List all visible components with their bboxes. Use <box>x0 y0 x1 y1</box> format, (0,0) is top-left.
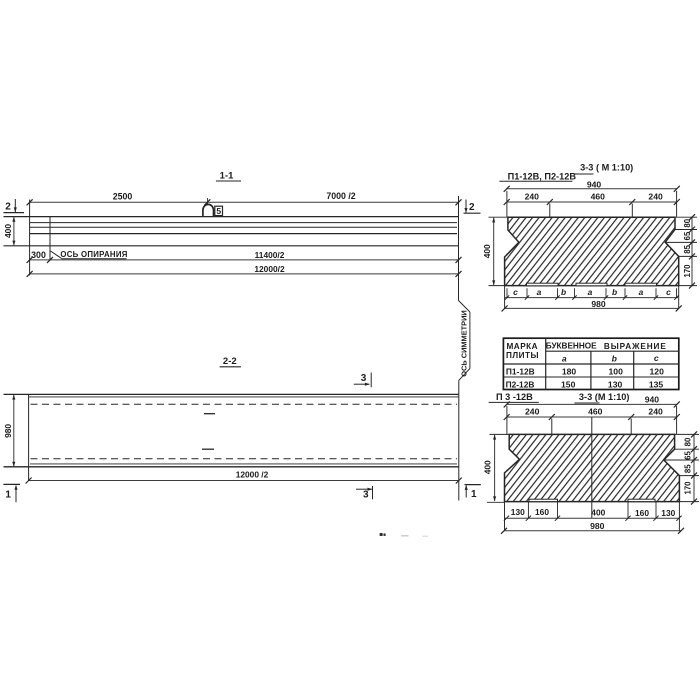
svg-text:2: 2 <box>469 202 475 213</box>
svg-text:ОСЬ СИММЕТРИИ: ОСЬ СИММЕТРИИ <box>460 310 469 376</box>
svg-text:a: a <box>537 287 542 297</box>
svg-text:БУКВЕННОЕ: БУКВЕННОЕ <box>546 342 597 351</box>
svg-text:П1-12В: П1-12В <box>506 367 535 377</box>
svg-text:120: 120 <box>650 367 665 377</box>
svg-text:85: 85 <box>684 464 693 473</box>
svg-text:130: 130 <box>608 379 623 389</box>
svg-text:180: 180 <box>562 367 577 377</box>
svg-text:b: b <box>561 287 566 297</box>
svg-text:135: 135 <box>649 379 664 389</box>
svg-text:240: 240 <box>648 406 663 416</box>
svg-text:460: 460 <box>591 191 606 201</box>
svg-text:940: 940 <box>645 395 660 405</box>
svg-text:c: c <box>513 287 518 297</box>
svg-text:130: 130 <box>661 508 675 518</box>
svg-text:МАРКА: МАРКА <box>506 342 538 351</box>
svg-text:П 3 -12В: П 3 -12В <box>496 392 533 402</box>
svg-text:a: a <box>588 287 593 297</box>
svg-text:ПЛИТЫ: ПЛИТЫ <box>506 351 539 360</box>
svg-text:160: 160 <box>635 508 649 518</box>
svg-text:160: 160 <box>535 507 549 517</box>
svg-text:170: 170 <box>684 481 693 495</box>
svg-text:150: 150 <box>561 379 576 389</box>
svg-text:85: 85 <box>683 244 692 253</box>
svg-text:80: 80 <box>683 218 692 227</box>
svg-text:2500: 2500 <box>113 192 133 202</box>
svg-text:2-2: 2-2 <box>223 356 237 367</box>
svg-text:b: b <box>612 353 617 363</box>
svg-text:ОСЬ ОПИРАНИЯ: ОСЬ ОПИРАНИЯ <box>60 250 127 259</box>
svg-text:980: 980 <box>591 299 606 309</box>
svg-text:240: 240 <box>648 191 663 201</box>
svg-text:240: 240 <box>525 406 540 416</box>
svg-text:5: 5 <box>216 206 221 216</box>
svg-text:3: 3 <box>363 490 369 501</box>
svg-text:240: 240 <box>525 191 540 201</box>
svg-text:П2-12В: П2-12В <box>506 379 535 389</box>
svg-text:7000 /2: 7000 /2 <box>326 191 355 201</box>
svg-text:400: 400 <box>3 224 13 238</box>
svg-text:1-1: 1-1 <box>220 171 234 182</box>
svg-text:170: 170 <box>683 264 692 278</box>
svg-text:940: 940 <box>587 179 602 189</box>
svg-text:80: 80 <box>684 437 693 446</box>
svg-text:11400/2: 11400/2 <box>255 250 285 260</box>
svg-text:b: b <box>612 287 617 297</box>
svg-text:1: 1 <box>5 490 11 501</box>
svg-text:3-3 (М 1:10): 3-3 (М 1:10) <box>579 392 630 402</box>
svg-text:1: 1 <box>471 489 477 500</box>
svg-text:c: c <box>666 287 671 297</box>
svg-text:12000 /2: 12000 /2 <box>236 469 269 479</box>
svg-text:65: 65 <box>684 451 693 460</box>
svg-text:100: 100 <box>609 367 624 377</box>
svg-text:3-3 ( М 1:10): 3-3 ( М 1:10) <box>580 162 633 172</box>
svg-text:c: c <box>654 353 659 363</box>
svg-text:980: 980 <box>590 521 605 531</box>
svg-text:3: 3 <box>361 373 367 384</box>
svg-text:П1-12В, П2-12В: П1-12В, П2-12В <box>508 171 577 181</box>
svg-text:980: 980 <box>3 424 13 438</box>
svg-text:65: 65 <box>683 231 692 240</box>
svg-text:460: 460 <box>588 406 603 416</box>
svg-text:a: a <box>639 287 644 297</box>
svg-text:130: 130 <box>511 507 525 517</box>
svg-text:400: 400 <box>483 460 493 474</box>
svg-text:ВЫРАЖЕНИЕ: ВЫРАЖЕНИЕ <box>604 342 667 351</box>
svg-text:400: 400 <box>482 244 492 258</box>
svg-text:300: 300 <box>31 250 46 260</box>
svg-text:a: a <box>562 354 567 364</box>
svg-text:400: 400 <box>591 507 605 517</box>
svg-text:12000/2: 12000/2 <box>254 264 285 274</box>
svg-text:2: 2 <box>5 202 11 213</box>
